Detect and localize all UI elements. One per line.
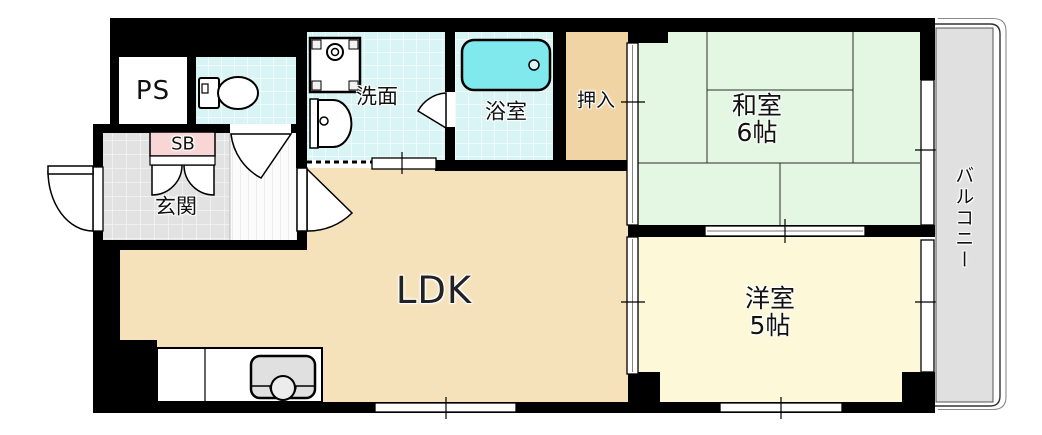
entrance-door-swing	[48, 171, 93, 231]
bathtub-icon	[462, 40, 550, 90]
ldk-floor-upper	[307, 168, 628, 250]
kitchen-counter	[157, 348, 322, 402]
ps-floor	[119, 57, 187, 124]
floor-plan-drawing	[0, 0, 1042, 435]
entrance-door-leaf	[48, 166, 93, 174]
entrance-opening	[93, 167, 103, 231]
kitchen-sink-icon	[251, 356, 315, 400]
balcony	[935, 19, 1006, 410]
balcony-floor	[936, 28, 993, 402]
vanity-sink-icon	[310, 99, 351, 148]
shoebox	[150, 132, 215, 165]
senmen-sliding-door	[372, 158, 436, 169]
washing-machine-icon	[310, 38, 360, 92]
washitsu-floor	[638, 32, 920, 225]
washitsu-balcony-window	[921, 80, 934, 225]
floor-plan: LDK 和室 6帖 洋室 5帖 浴室 洗面 押入 玄関 PS SB バルコニー	[0, 0, 1042, 435]
oshiire-floor	[566, 32, 628, 160]
hallway-ldk-door-leaf	[297, 168, 307, 231]
yoshitsu-floor	[638, 237, 920, 402]
toilet-icon	[199, 77, 258, 109]
yoshitsu-balcony-window	[921, 240, 934, 372]
